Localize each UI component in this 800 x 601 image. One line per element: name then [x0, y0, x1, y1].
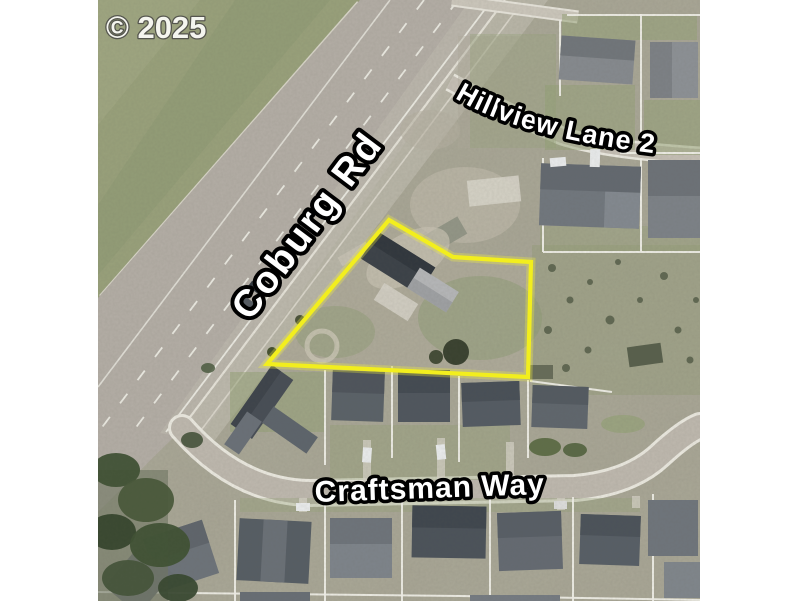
- photo-grain: [98, 0, 700, 601]
- aerial-photo: Coburg Rd Hillview Lane 2 Craftsman Way …: [0, 0, 800, 601]
- copyright-watermark: © 2025: [106, 10, 206, 45]
- aerial-map-view: Coburg Rd Hillview Lane 2 Craftsman Way …: [0, 0, 800, 601]
